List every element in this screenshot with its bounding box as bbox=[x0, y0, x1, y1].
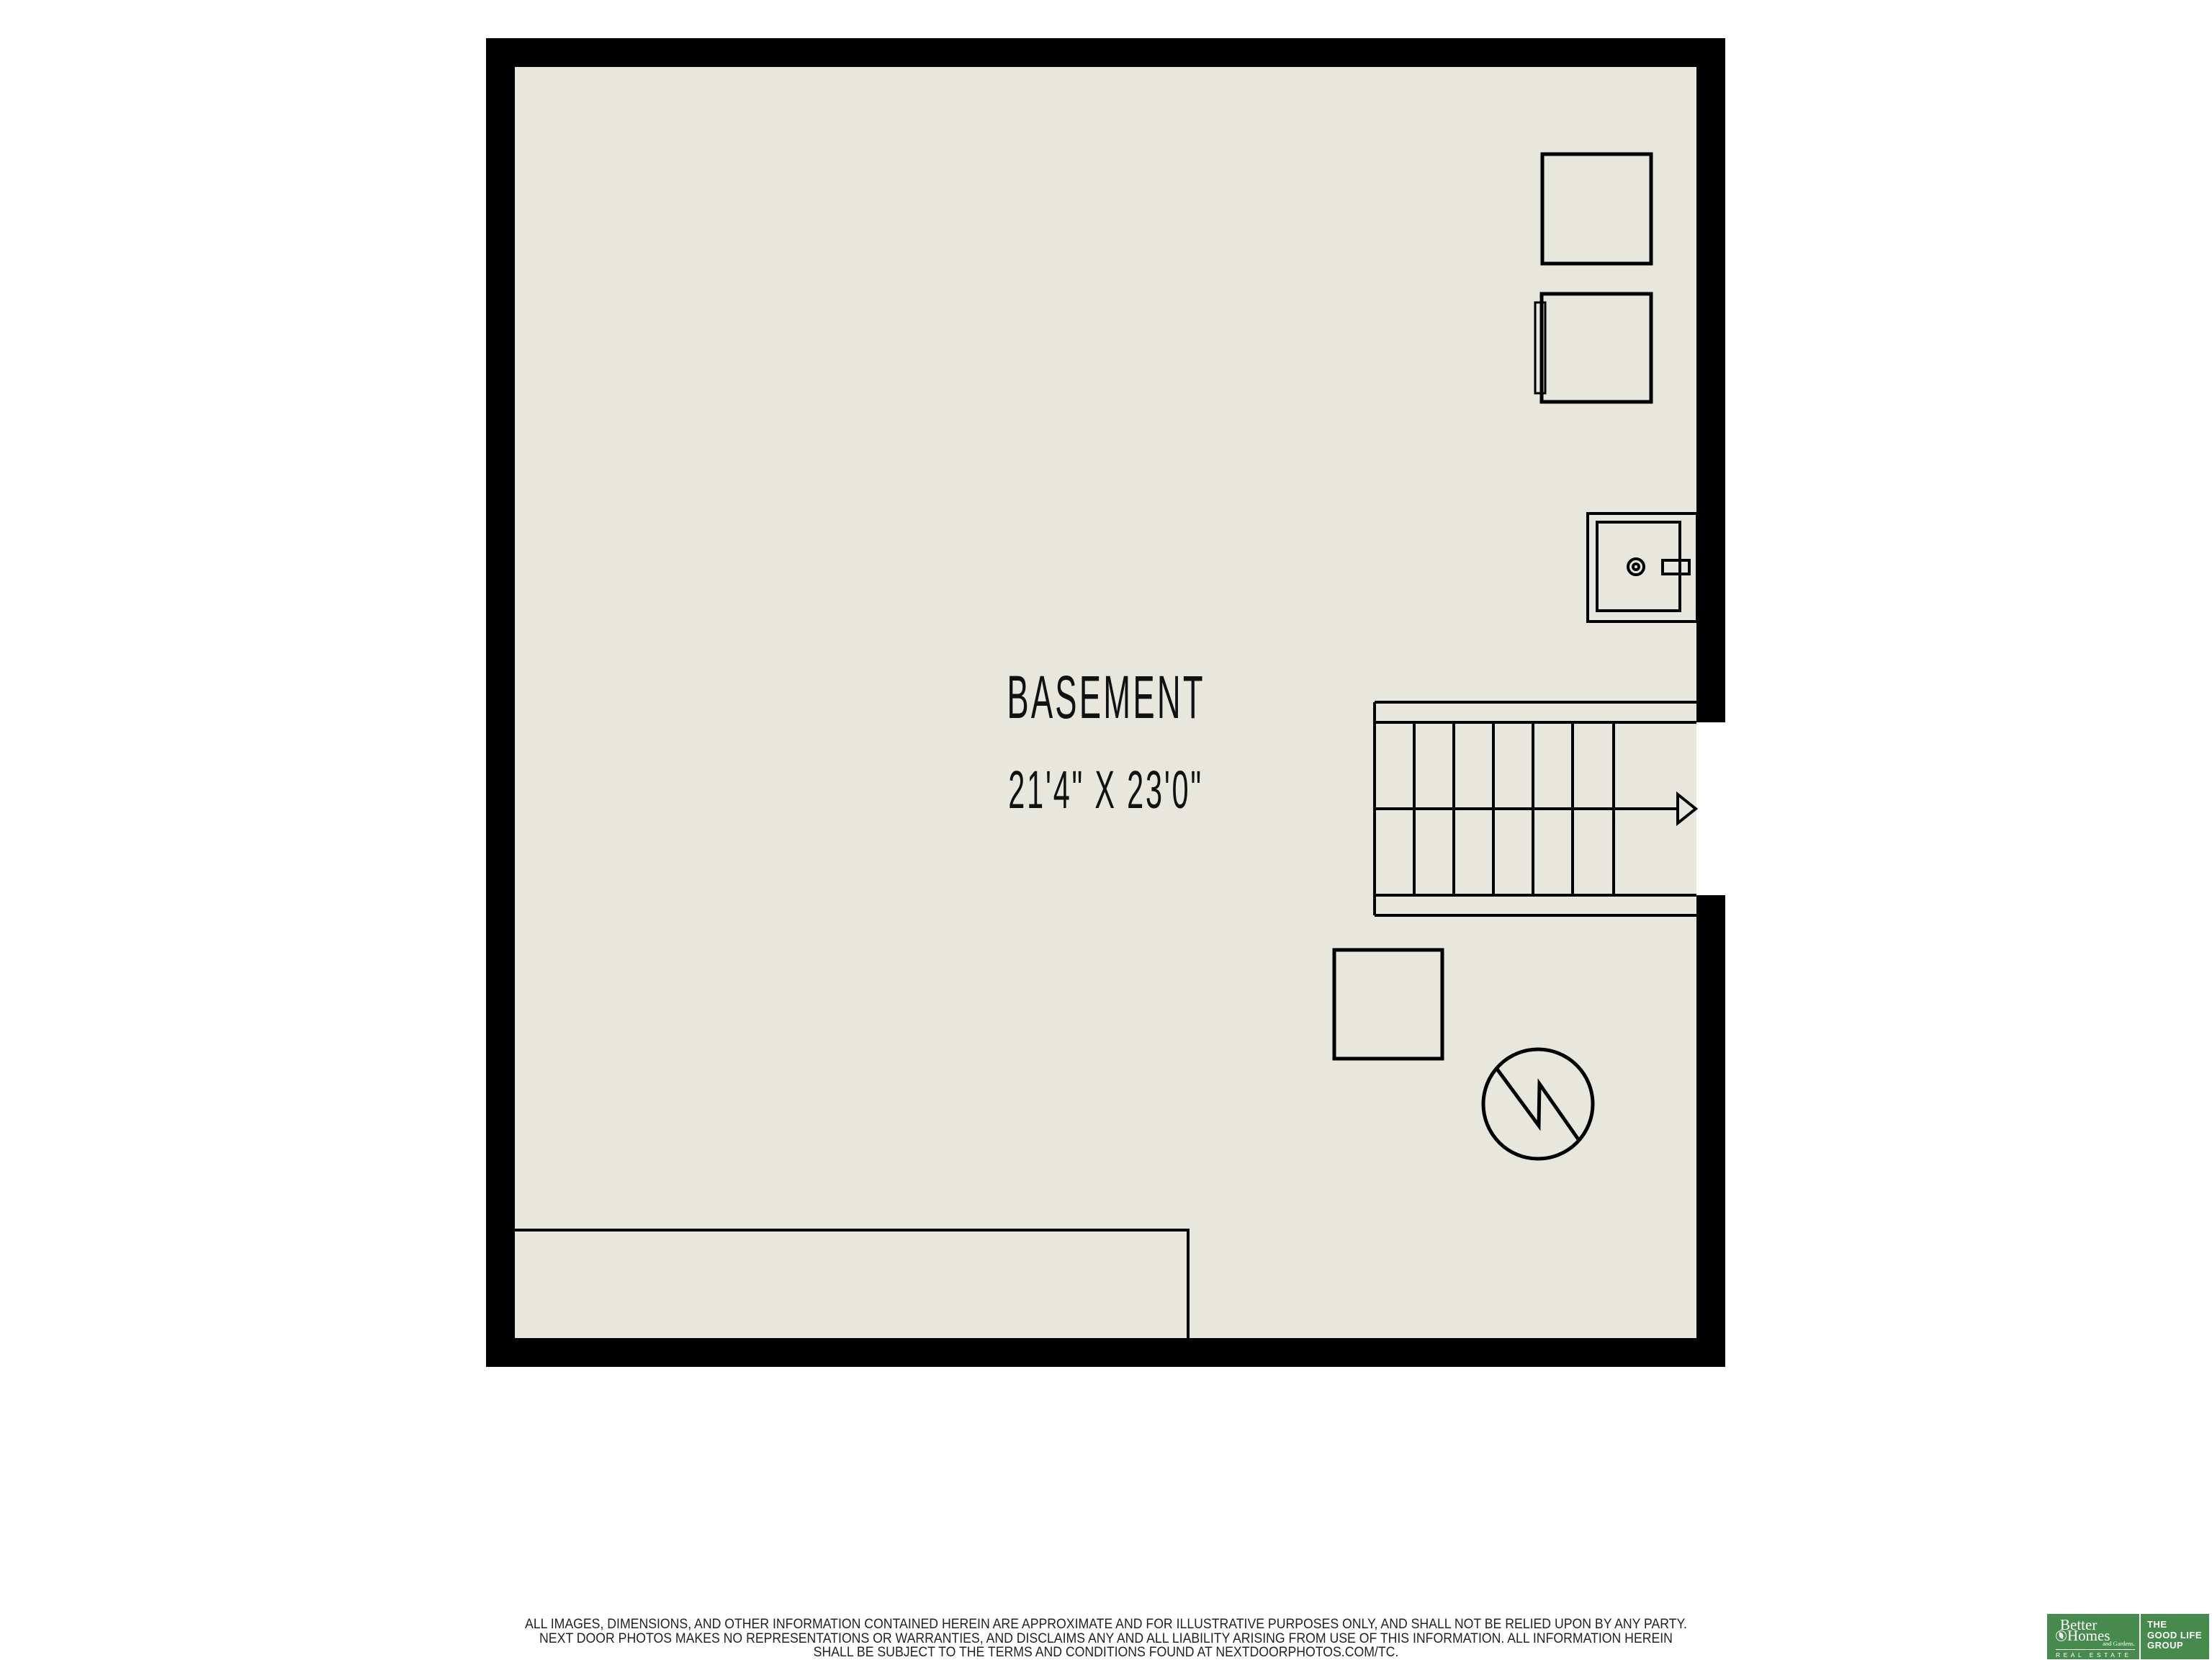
group-line-1: THE bbox=[2147, 1620, 2209, 1630]
disclaimer-line-1: ALL IMAGES, DIMENSIONS, AND OTHER INFORM… bbox=[78, 1618, 2135, 1632]
logo-divider-rule bbox=[2056, 1649, 2135, 1650]
brand-tagline: REAL ESTATE bbox=[2056, 1652, 2135, 1659]
disclaimer: ALL IMAGES, DIMENSIONS, AND OTHER INFORM… bbox=[78, 1618, 2135, 1660]
leaf-icon bbox=[2056, 1630, 2067, 1641]
room-name-text: BASEMENT bbox=[1007, 663, 1205, 732]
brand-logo: Better Homes and Gardens. REAL ESTATE TH… bbox=[2047, 1614, 2209, 1659]
group-line-2: GOOD LIFE bbox=[2147, 1630, 2209, 1641]
disclaimer-line-3: SHALL BE SUBJECT TO THE TERMS AND CONDIT… bbox=[78, 1646, 2135, 1660]
group-line-3: GROUP bbox=[2147, 1641, 2209, 1651]
floorplan-canvas bbox=[0, 0, 2212, 1659]
room-size-text: 21'4" X 23'0" bbox=[1009, 759, 1204, 820]
better-homes-gardens-logo: Better Homes and Gardens. REAL ESTATE bbox=[2047, 1614, 2141, 1659]
room-size-label: 21'4" X 23'0" bbox=[0, 759, 2212, 820]
disclaimer-line-2: NEXT DOOR PHOTOS MAKES NO REPRESENTATION… bbox=[78, 1632, 2135, 1646]
floorplan-page: { "room": { "name": "BASEMENT", "size": … bbox=[0, 0, 2212, 1659]
good-life-group-logo: THE GOOD LIFE GROUP bbox=[2141, 1614, 2209, 1659]
room-name-label: BASEMENT bbox=[0, 663, 2212, 732]
